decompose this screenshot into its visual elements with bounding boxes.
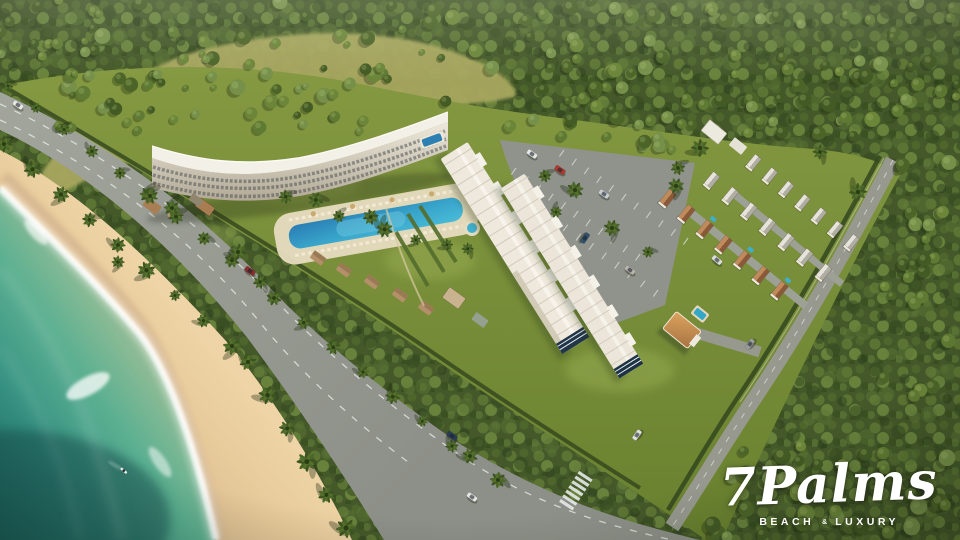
logo-subtitle-beach: BEACH [759,516,814,528]
resort-aerial-render: 7Palms BEACH & LUXURY [0,0,960,540]
logo-title: 7Palms [720,455,939,515]
brand-logo: 7Palms BEACH & LUXURY [720,459,938,528]
logo-subtitle-luxury: LUXURY [835,516,899,528]
logo-subtitle: BEACH & LUXURY [720,516,938,528]
logo-separator: & [822,519,827,526]
